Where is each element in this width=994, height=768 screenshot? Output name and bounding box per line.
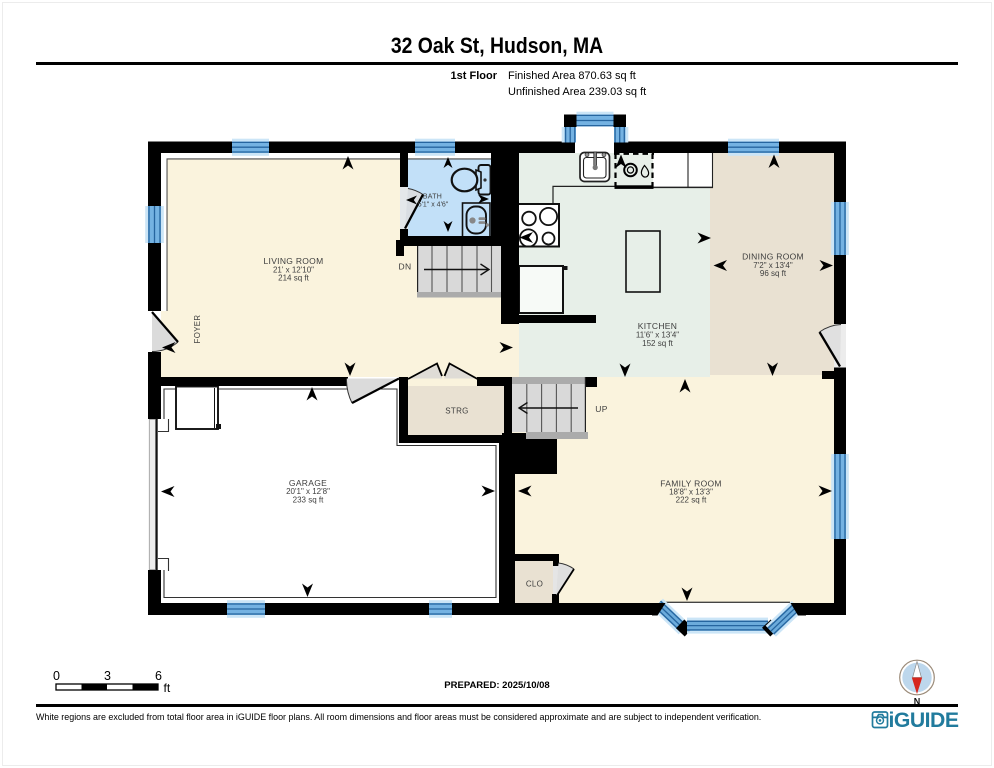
svg-text:FOYER: FOYER [193,315,202,344]
svg-text:BATH: BATH [423,193,442,200]
svg-text:5'1" x 4'6": 5'1" x 4'6" [418,202,449,209]
svg-text:96 sq ft: 96 sq ft [760,269,787,278]
svg-text:152 sq ft: 152 sq ft [642,339,673,348]
svg-text:STRG: STRG [445,407,468,416]
svg-text:222 sq ft: 222 sq ft [676,496,707,505]
svg-text:214 sq ft: 214 sq ft [278,274,309,283]
svg-text:233 sq ft: 233 sq ft [293,495,324,504]
svg-text:DN: DN [399,261,412,271]
svg-text:iGUIDE: iGUIDE [889,709,960,732]
svg-text:UP: UP [595,404,607,414]
svg-text:CLO: CLO [526,580,543,589]
